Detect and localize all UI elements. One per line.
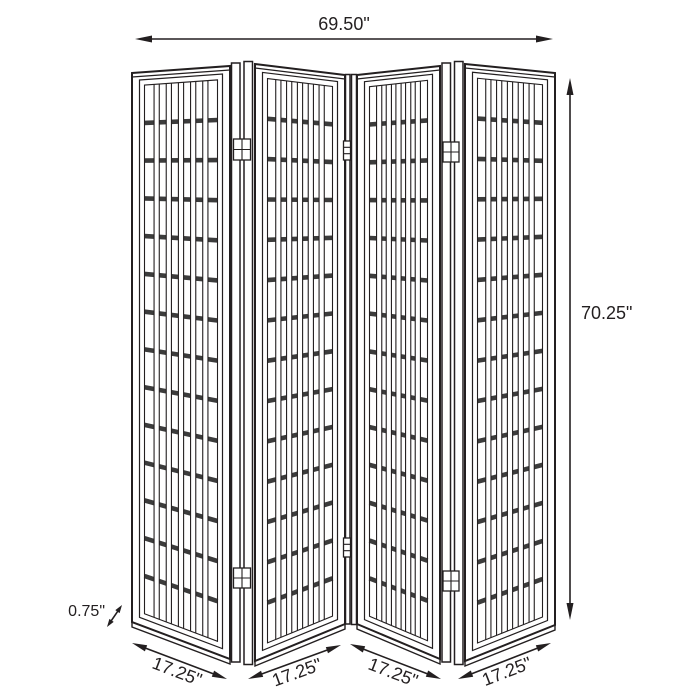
hinge-2-3-upper — [344, 141, 351, 160]
panel-thickness-arrow — [107, 605, 122, 627]
hinge-2-3-lower — [344, 538, 351, 557]
arrowhead — [135, 36, 152, 43]
panel-thickness-label: 0.75" — [68, 603, 105, 620]
diagram-canvas: 69.50" 70.25" 0.75" 17.25" 17.25" 17.25"… — [0, 0, 700, 700]
room-divider-dimension-diagram: 69.50" 70.25" 0.75" 17.25" 17.25" 17.25"… — [0, 0, 700, 700]
arrowhead — [536, 643, 551, 652]
hinge-1-2-upper — [234, 139, 251, 160]
panel-width-label-4: 17.25" — [479, 653, 534, 690]
arrowhead — [132, 643, 147, 651]
overall-height-arrow — [567, 78, 574, 620]
overall-width-arrow — [135, 36, 553, 43]
arrowhead — [212, 671, 227, 679]
arrowhead — [115, 605, 122, 613]
panel-2 — [255, 64, 345, 666]
arrowhead — [567, 603, 574, 620]
dimension-line — [111, 610, 119, 621]
hinge-1-2-lower — [234, 568, 251, 588]
hinge-plate — [344, 538, 351, 557]
arrowhead — [350, 644, 365, 653]
arrowhead — [567, 78, 574, 95]
arrowhead — [536, 36, 553, 43]
panel-1 — [132, 66, 230, 664]
arrowhead — [248, 671, 263, 679]
hinge-3-4-upper — [443, 142, 459, 162]
arrowhead — [107, 619, 114, 627]
panel-width-label-3: 17.25" — [366, 654, 421, 691]
overall-width-label: 69.50" — [318, 14, 369, 34]
stile-panel3-left — [352, 75, 357, 625]
panel-width-label-2: 17.25" — [269, 654, 324, 690]
panel-3 — [357, 66, 440, 664]
overall-height-label: 70.25" — [581, 303, 632, 323]
panel-width-label-1: 17.25" — [150, 653, 205, 690]
arrowhead — [326, 645, 341, 653]
panel-4 — [465, 64, 555, 666]
hinge-3-4-lower — [443, 571, 459, 591]
arrowhead — [426, 671, 441, 680]
hinge-plate — [344, 141, 351, 160]
arrowhead — [458, 671, 473, 680]
